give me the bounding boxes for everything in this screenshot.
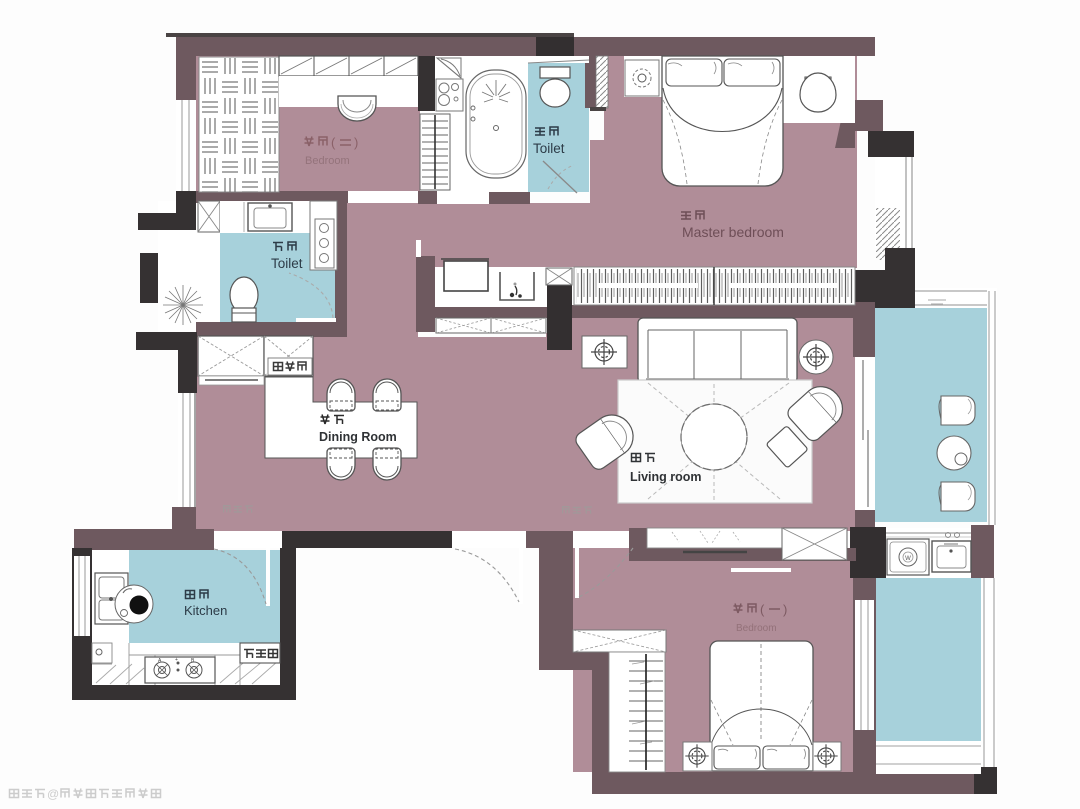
- svg-text:+: +: [175, 657, 178, 663]
- svg-text:W: W: [905, 556, 911, 562]
- svg-text:Dining Room: Dining Room: [319, 430, 397, 444]
- svg-text:(: (: [331, 135, 336, 150]
- svg-text:Toilet: Toilet: [533, 141, 565, 156]
- svg-text:Kitchen: Kitchen: [184, 603, 227, 618]
- svg-text:(: (: [760, 602, 765, 617]
- svg-text:Living room: Living room: [630, 470, 702, 484]
- svg-text:): ): [354, 135, 358, 150]
- svg-text:@: @: [47, 787, 59, 801]
- svg-text:): ): [783, 602, 787, 617]
- svg-text:Bedroom: Bedroom: [305, 155, 350, 167]
- svg-text:Master bedroom: Master bedroom: [682, 224, 784, 240]
- svg-text:Bedroom: Bedroom: [736, 623, 777, 634]
- svg-text:Toilet: Toilet: [271, 256, 303, 271]
